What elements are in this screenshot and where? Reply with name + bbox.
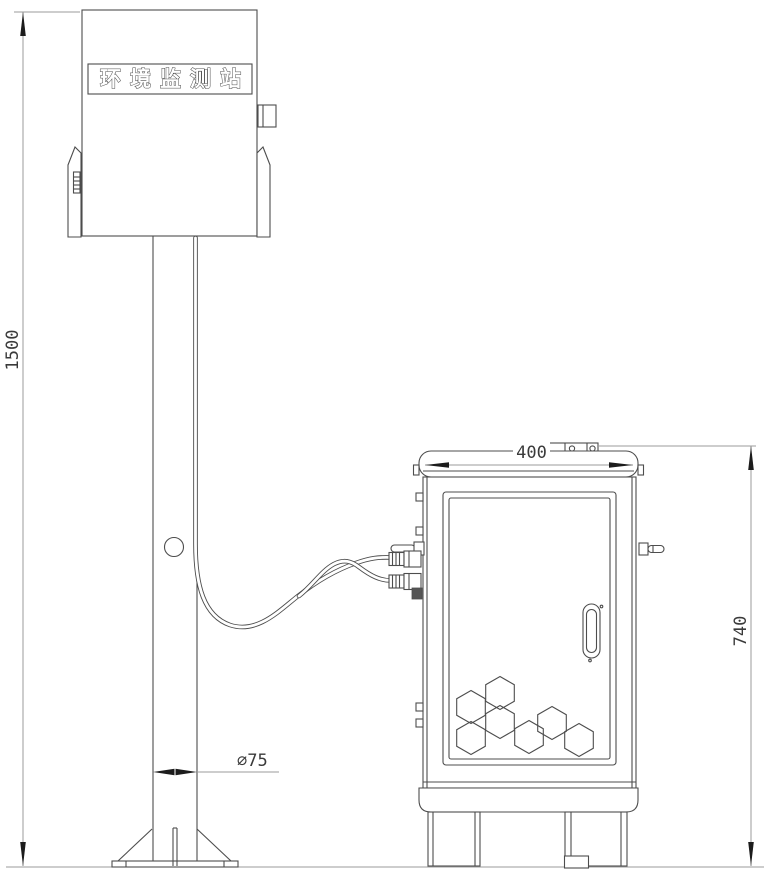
cabinet-leg-right xyxy=(565,812,628,868)
arrowhead-up xyxy=(748,446,754,470)
pole-diameter-label: ∅75 xyxy=(237,751,268,771)
cable-gland-top xyxy=(389,551,421,567)
right-sensor-rod xyxy=(639,543,664,555)
arrowhead-right xyxy=(176,769,198,775)
pole-base xyxy=(112,828,238,867)
left-gusset xyxy=(118,829,152,861)
signal-cable xyxy=(196,238,392,627)
station-right-flange xyxy=(257,147,270,237)
station-label: 环境监测站 xyxy=(100,67,250,91)
aux-connector xyxy=(412,588,422,599)
anchor-bolt xyxy=(173,828,177,866)
drawing-canvas: 1500 环境监测站 xyxy=(0,0,769,882)
cabinet-height-label: 740 xyxy=(731,616,751,647)
cabinet-bottom-cap xyxy=(419,788,638,812)
arrowhead-left xyxy=(153,769,175,775)
pole-cable-hole xyxy=(165,538,184,557)
hinge-pin xyxy=(416,527,423,535)
hinge-pin xyxy=(416,493,423,501)
cabinet-door xyxy=(443,492,616,765)
hinge-pin xyxy=(416,719,423,727)
pole-diameter-dimension: ∅75 xyxy=(153,751,279,775)
pole-height-dimension: 1500 xyxy=(3,12,80,866)
cap-right-nub xyxy=(638,465,644,475)
arrowhead-down xyxy=(20,842,26,866)
cap-left-nub xyxy=(414,465,420,475)
hinge-pin xyxy=(416,703,423,711)
base-plate xyxy=(112,861,238,867)
technical-drawing-page: 1500 环境监测站 xyxy=(0,0,769,882)
analyzer-cabinet: 400 xyxy=(389,440,664,868)
arrowhead-down xyxy=(748,842,754,866)
cabinet-leg-left xyxy=(428,812,480,866)
pole-height-label: 1500 xyxy=(3,330,23,371)
station-side-connector xyxy=(258,105,276,127)
right-gusset xyxy=(197,829,231,861)
cable-gland-bottom xyxy=(389,574,421,590)
leg-foot xyxy=(565,856,589,868)
cabinet-width-label: 400 xyxy=(516,443,547,463)
mounting-pole xyxy=(153,236,197,861)
station-head-box: 环境监测站 xyxy=(68,10,276,237)
hinge-detail xyxy=(74,172,81,193)
arrowhead-up xyxy=(20,12,26,36)
station-box-body xyxy=(82,10,257,236)
